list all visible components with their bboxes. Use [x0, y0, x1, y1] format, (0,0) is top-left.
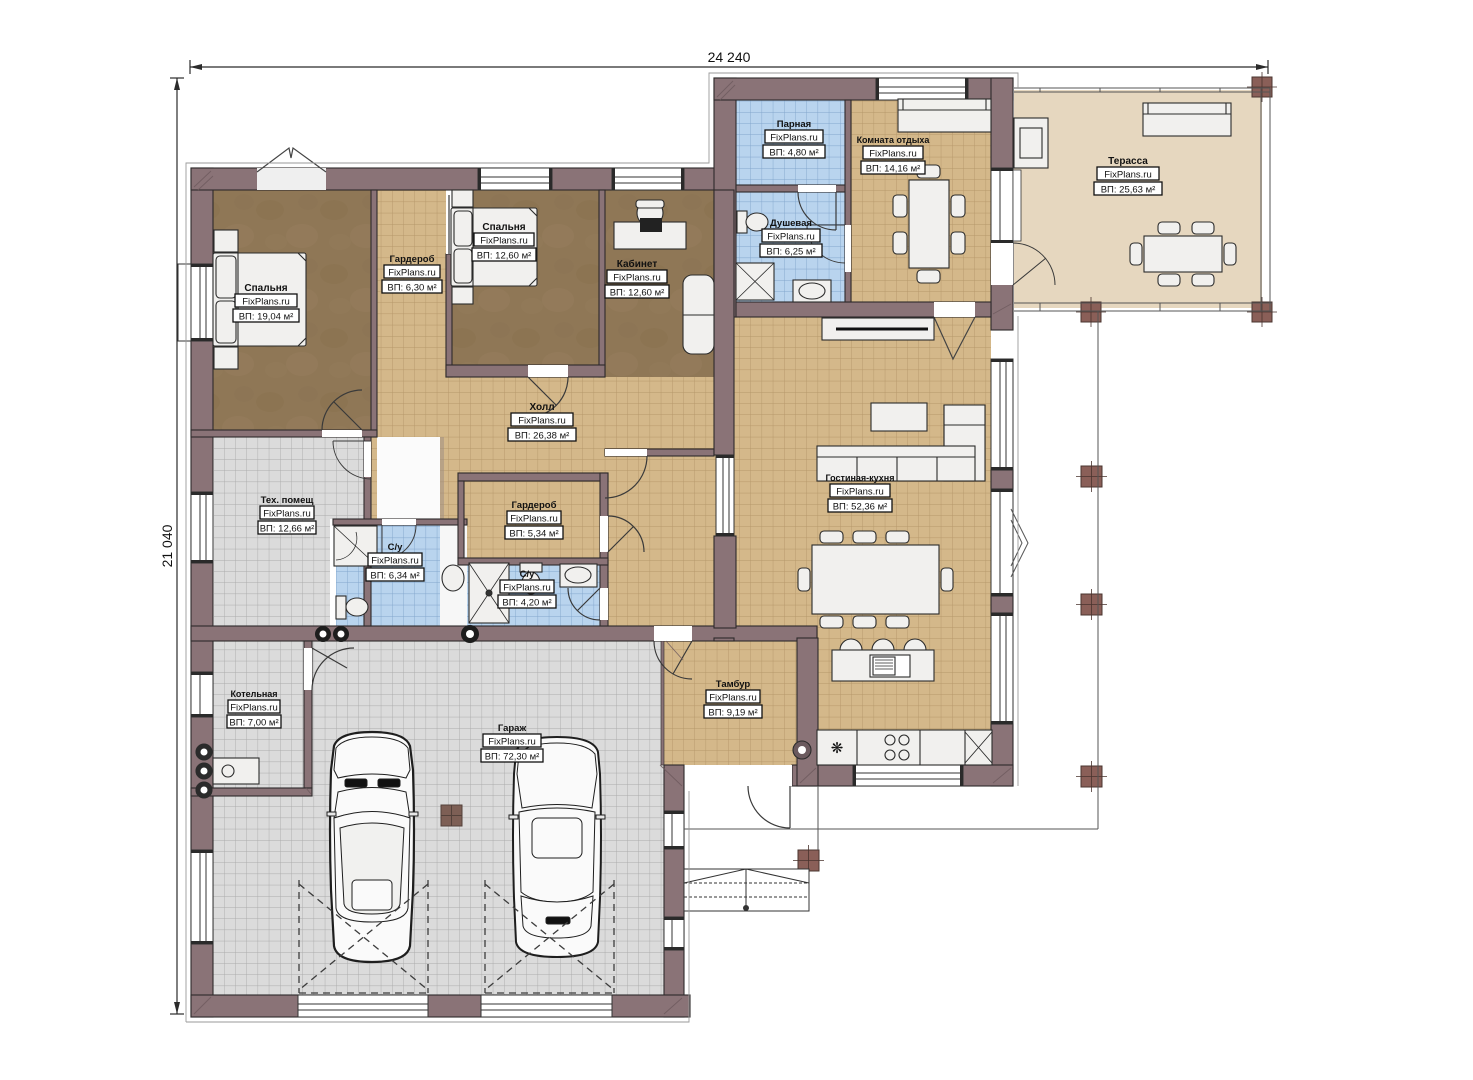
svg-text:ВП: 4,80 м²: ВП: 4,80 м² — [769, 148, 818, 159]
svg-text:ВП: 52,36 м²: ВП: 52,36 м² — [833, 502, 888, 513]
svg-text:ВП: 26,38 м²: ВП: 26,38 м² — [515, 431, 570, 442]
svg-text:Спальня: Спальня — [244, 283, 287, 294]
svg-text:21 040: 21 040 — [159, 524, 175, 567]
svg-text:ВП: 4,20 м²: ВП: 4,20 м² — [502, 598, 551, 609]
svg-text:ВП: 12,60 м²: ВП: 12,60 м² — [477, 251, 532, 262]
svg-text:ВП: 72,30 м²: ВП: 72,30 м² — [485, 752, 540, 763]
svg-text:FixPlans.ru: FixPlans.ru — [770, 133, 818, 144]
svg-text:FixPlans.ru: FixPlans.ru — [480, 236, 528, 247]
svg-text:FixPlans.ru: FixPlans.ru — [836, 487, 884, 498]
svg-text:Гардероб: Гардероб — [390, 254, 435, 265]
svg-text:Гараж: Гараж — [498, 723, 527, 734]
svg-text:ВП: 6,34 м²: ВП: 6,34 м² — [370, 571, 419, 582]
svg-text:ВП: 25,63 м²: ВП: 25,63 м² — [1101, 185, 1156, 196]
svg-text:Тех. помещ: Тех. помещ — [261, 495, 314, 506]
svg-text:FixPlans.ru: FixPlans.ru — [613, 273, 661, 284]
svg-text:FixPlans.ru: FixPlans.ru — [388, 268, 436, 279]
svg-text:ВП: 19,04 м²: ВП: 19,04 м² — [239, 312, 294, 323]
svg-text:Комната отдыха: Комната отдыха — [857, 135, 931, 145]
svg-text:FixPlans.ru: FixPlans.ru — [869, 149, 917, 160]
svg-text:ВП: 7,00 м²: ВП: 7,00 м² — [229, 718, 278, 729]
svg-text:FixPlans.ru: FixPlans.ru — [488, 737, 536, 748]
svg-text:Тамбур: Тамбур — [716, 679, 751, 690]
svg-text:Холл: Холл — [529, 402, 554, 413]
svg-text:FixPlans.ru: FixPlans.ru — [371, 556, 419, 567]
svg-text:FixPlans.ru: FixPlans.ru — [242, 297, 290, 308]
svg-text:ВП: 9,19 м²: ВП: 9,19 м² — [708, 708, 757, 719]
svg-text:FixPlans.ru: FixPlans.ru — [518, 416, 566, 427]
svg-text:ВП: 5,34 м²: ВП: 5,34 м² — [509, 529, 558, 540]
svg-text:Кабинет: Кабинет — [617, 258, 658, 270]
svg-text:❋: ❋ — [831, 740, 844, 757]
svg-text:Спальня: Спальня — [482, 222, 525, 233]
svg-text:Гостиная-кухня: Гостиная-кухня — [826, 473, 895, 483]
svg-text:FixPlans.ru: FixPlans.ru — [230, 703, 278, 714]
svg-text:Гардероб: Гардероб — [512, 500, 557, 511]
svg-text:FixPlans.ru: FixPlans.ru — [510, 514, 558, 525]
svg-text:FixPlans.ru: FixPlans.ru — [1104, 170, 1152, 181]
svg-text:FixPlans.ru: FixPlans.ru — [503, 583, 551, 594]
svg-text:FixPlans.ru: FixPlans.ru — [767, 232, 815, 243]
svg-text:ВП: 12,66 м²: ВП: 12,66 м² — [260, 524, 315, 535]
svg-text:Парная: Парная — [777, 119, 811, 130]
svg-text:ВП: 6,30 м²: ВП: 6,30 м² — [387, 283, 436, 294]
svg-text:Терасса: Терасса — [1108, 156, 1148, 167]
svg-text:FixPlans.ru: FixPlans.ru — [263, 509, 311, 520]
svg-text:ВП: 14,16 м²: ВП: 14,16 м² — [866, 164, 921, 175]
svg-text:ВП: 6,25 м²: ВП: 6,25 м² — [766, 247, 815, 258]
svg-text:ВП: 12,60 м²: ВП: 12,60 м² — [610, 288, 665, 299]
svg-text:24 240: 24 240 — [708, 49, 751, 65]
svg-text:С/у: С/у — [520, 569, 536, 580]
svg-text:Душевая: Душевая — [770, 218, 812, 229]
svg-text:Котельная: Котельная — [230, 689, 277, 699]
svg-text:С/у: С/у — [388, 542, 404, 553]
svg-text:FixPlans.ru: FixPlans.ru — [709, 693, 757, 704]
